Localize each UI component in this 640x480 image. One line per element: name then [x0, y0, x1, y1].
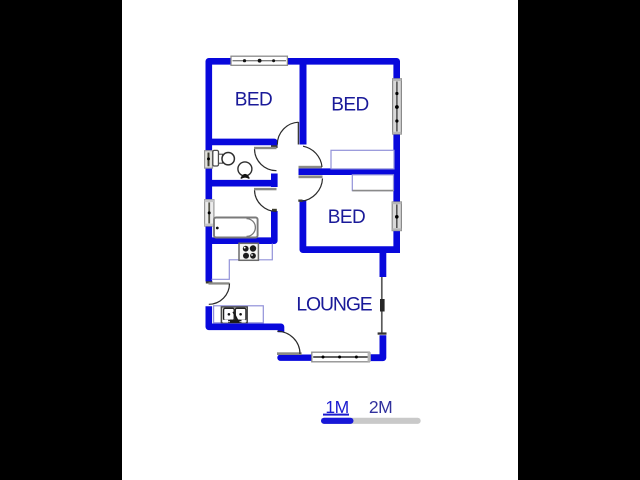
svg-text:BED: BED	[235, 90, 273, 111]
svg-text:BED: BED	[328, 207, 366, 228]
svg-text:BED: BED	[331, 94, 369, 115]
svg-text:2M: 2M	[369, 397, 392, 417]
svg-text:LOUNGE: LOUNGE	[296, 294, 372, 316]
